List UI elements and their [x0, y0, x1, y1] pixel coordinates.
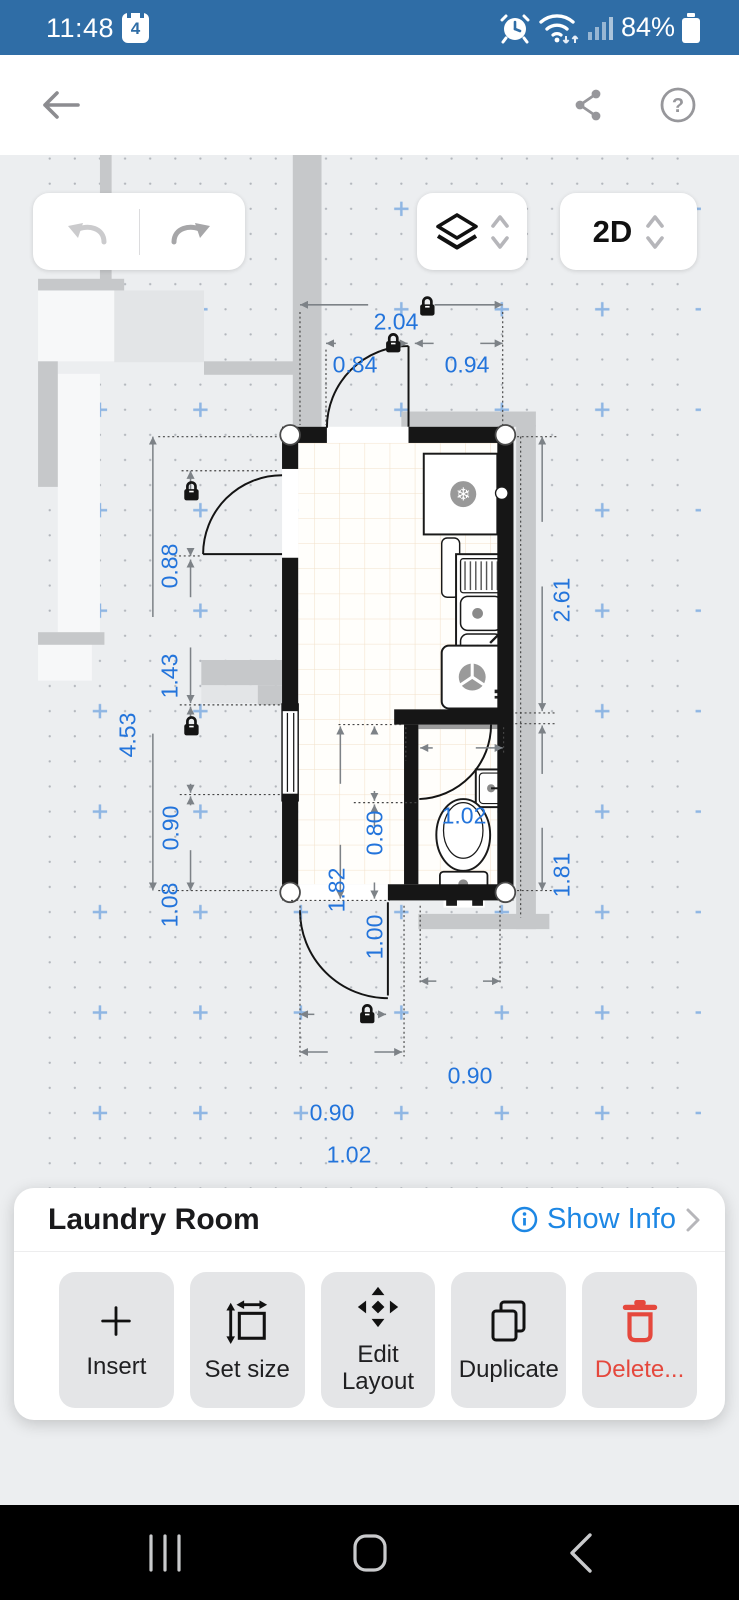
- washing-machine[interactable]: [442, 646, 505, 709]
- home-button[interactable]: [335, 1505, 405, 1600]
- stepper-chevrons-icon[interactable]: [491, 213, 509, 251]
- insert-button[interactable]: Insert: [59, 1272, 174, 1408]
- corner-handle: [280, 425, 300, 445]
- corner-handle: [496, 425, 516, 445]
- recents-button[interactable]: [130, 1505, 200, 1600]
- button-label: Delete...: [595, 1356, 684, 1383]
- alarm-icon: [500, 12, 530, 44]
- view-mode-value: 2D: [593, 214, 633, 250]
- share-icon: [572, 88, 604, 122]
- dim-label-right-upper[interactable]: 2.61: [549, 578, 576, 623]
- stepper-chevrons-icon[interactable]: [646, 213, 664, 251]
- show-info-label: Show Info: [547, 1203, 676, 1236]
- notification-badge-icon: 4: [122, 13, 149, 43]
- android-navbar: [0, 1505, 739, 1600]
- corner-handle: [280, 882, 300, 902]
- dim-label-left-bottom[interactable]: 1.08: [157, 883, 184, 928]
- snowflake-icon: ❄: [456, 484, 471, 505]
- wall-pipe: [496, 487, 509, 500]
- undo-icon: [64, 214, 108, 250]
- app-toolbar: ?: [0, 55, 739, 155]
- button-label: Insert: [86, 1353, 146, 1380]
- button-label: Set size: [205, 1356, 290, 1383]
- button-label: Duplicate: [457, 1356, 561, 1383]
- dim-label-left-total[interactable]: 4.53: [115, 713, 142, 758]
- resize-icon: [224, 1298, 270, 1344]
- share-button[interactable]: [565, 55, 611, 155]
- home-icon: [351, 1533, 389, 1573]
- plus-icon: [96, 1301, 136, 1341]
- undo-button[interactable]: [34, 193, 139, 270]
- copy-icon: [488, 1298, 530, 1344]
- dim-label-bottom-door[interactable]: 0.90: [310, 1100, 355, 1127]
- dim-label-inner-height[interactable]: 1.82: [324, 868, 351, 913]
- signal-icon: [588, 14, 614, 42]
- redo-button[interactable]: [140, 193, 245, 270]
- set-size-button[interactable]: Set size: [190, 1272, 305, 1408]
- dim-label-top-total[interactable]: 2.04: [374, 309, 419, 336]
- dim-label-left-window[interactable]: 0.90: [158, 806, 185, 851]
- layers-icon: [435, 212, 479, 252]
- edit-layout-button[interactable]: Edit Layout: [321, 1272, 436, 1408]
- window[interactable]: [282, 704, 298, 801]
- dim-label-top-door[interactable]: 0.84: [333, 352, 378, 379]
- svg-text:?: ?: [672, 95, 684, 117]
- dim-label-right-lower[interactable]: 1.81: [549, 853, 576, 898]
- dim-label-left-door[interactable]: 0.88: [157, 544, 184, 589]
- info-icon: [511, 1206, 538, 1233]
- room-title: Laundry Room: [48, 1203, 260, 1237]
- dim-label-bottom-right[interactable]: 0.90: [448, 1063, 493, 1090]
- notification-count: 4: [131, 19, 140, 39]
- back-nav-button[interactable]: [545, 1505, 615, 1600]
- chevron-right-icon: [685, 1207, 701, 1233]
- dim-label-bottom-total[interactable]: 1.02: [327, 1142, 372, 1169]
- move-icon: [356, 1285, 400, 1329]
- show-info-button[interactable]: Show Info: [511, 1203, 701, 1236]
- corner-handle: [496, 882, 516, 902]
- duplicate-button[interactable]: Duplicate: [451, 1272, 566, 1408]
- fridge[interactable]: ❄: [424, 454, 498, 535]
- recents-icon: [145, 1533, 185, 1573]
- dim-label-bath-lower[interactable]: 1.00: [362, 915, 389, 960]
- screen: 11:48 4: [0, 0, 739, 1600]
- dim-label-top-right[interactable]: 0.94: [445, 352, 490, 379]
- back-chevron-icon: [566, 1531, 594, 1575]
- trash-icon: [619, 1298, 661, 1344]
- button-label: Edit Layout: [321, 1341, 436, 1395]
- delete-button[interactable]: Delete...: [582, 1272, 697, 1408]
- back-button[interactable]: [34, 55, 84, 155]
- dim-label-left-mid[interactable]: 1.43: [157, 654, 184, 699]
- action-buttons: Insert Set size: [14, 1252, 725, 1408]
- undo-redo-card: [33, 193, 245, 270]
- redo-icon: [170, 214, 214, 250]
- help-button[interactable]: ?: [653, 55, 703, 155]
- dim-label-bath-width[interactable]: 1.02: [442, 803, 487, 830]
- wifi-icon: [537, 10, 581, 46]
- battery-percent: 84%: [621, 12, 675, 43]
- room-action-sheet: Laundry Room Show Info Insert: [14, 1188, 725, 1420]
- layer-selector[interactable]: [417, 193, 527, 270]
- arrow-left-icon: [38, 88, 80, 122]
- status-bar: 11:48 4: [0, 0, 739, 55]
- battery-icon: [682, 13, 700, 43]
- view-mode-selector[interactable]: 2D: [560, 193, 697, 270]
- clock-time: 11:48: [46, 13, 114, 44]
- question-circle-icon: ?: [659, 86, 697, 124]
- dim-label-bath-upper[interactable]: 0.80: [362, 811, 389, 856]
